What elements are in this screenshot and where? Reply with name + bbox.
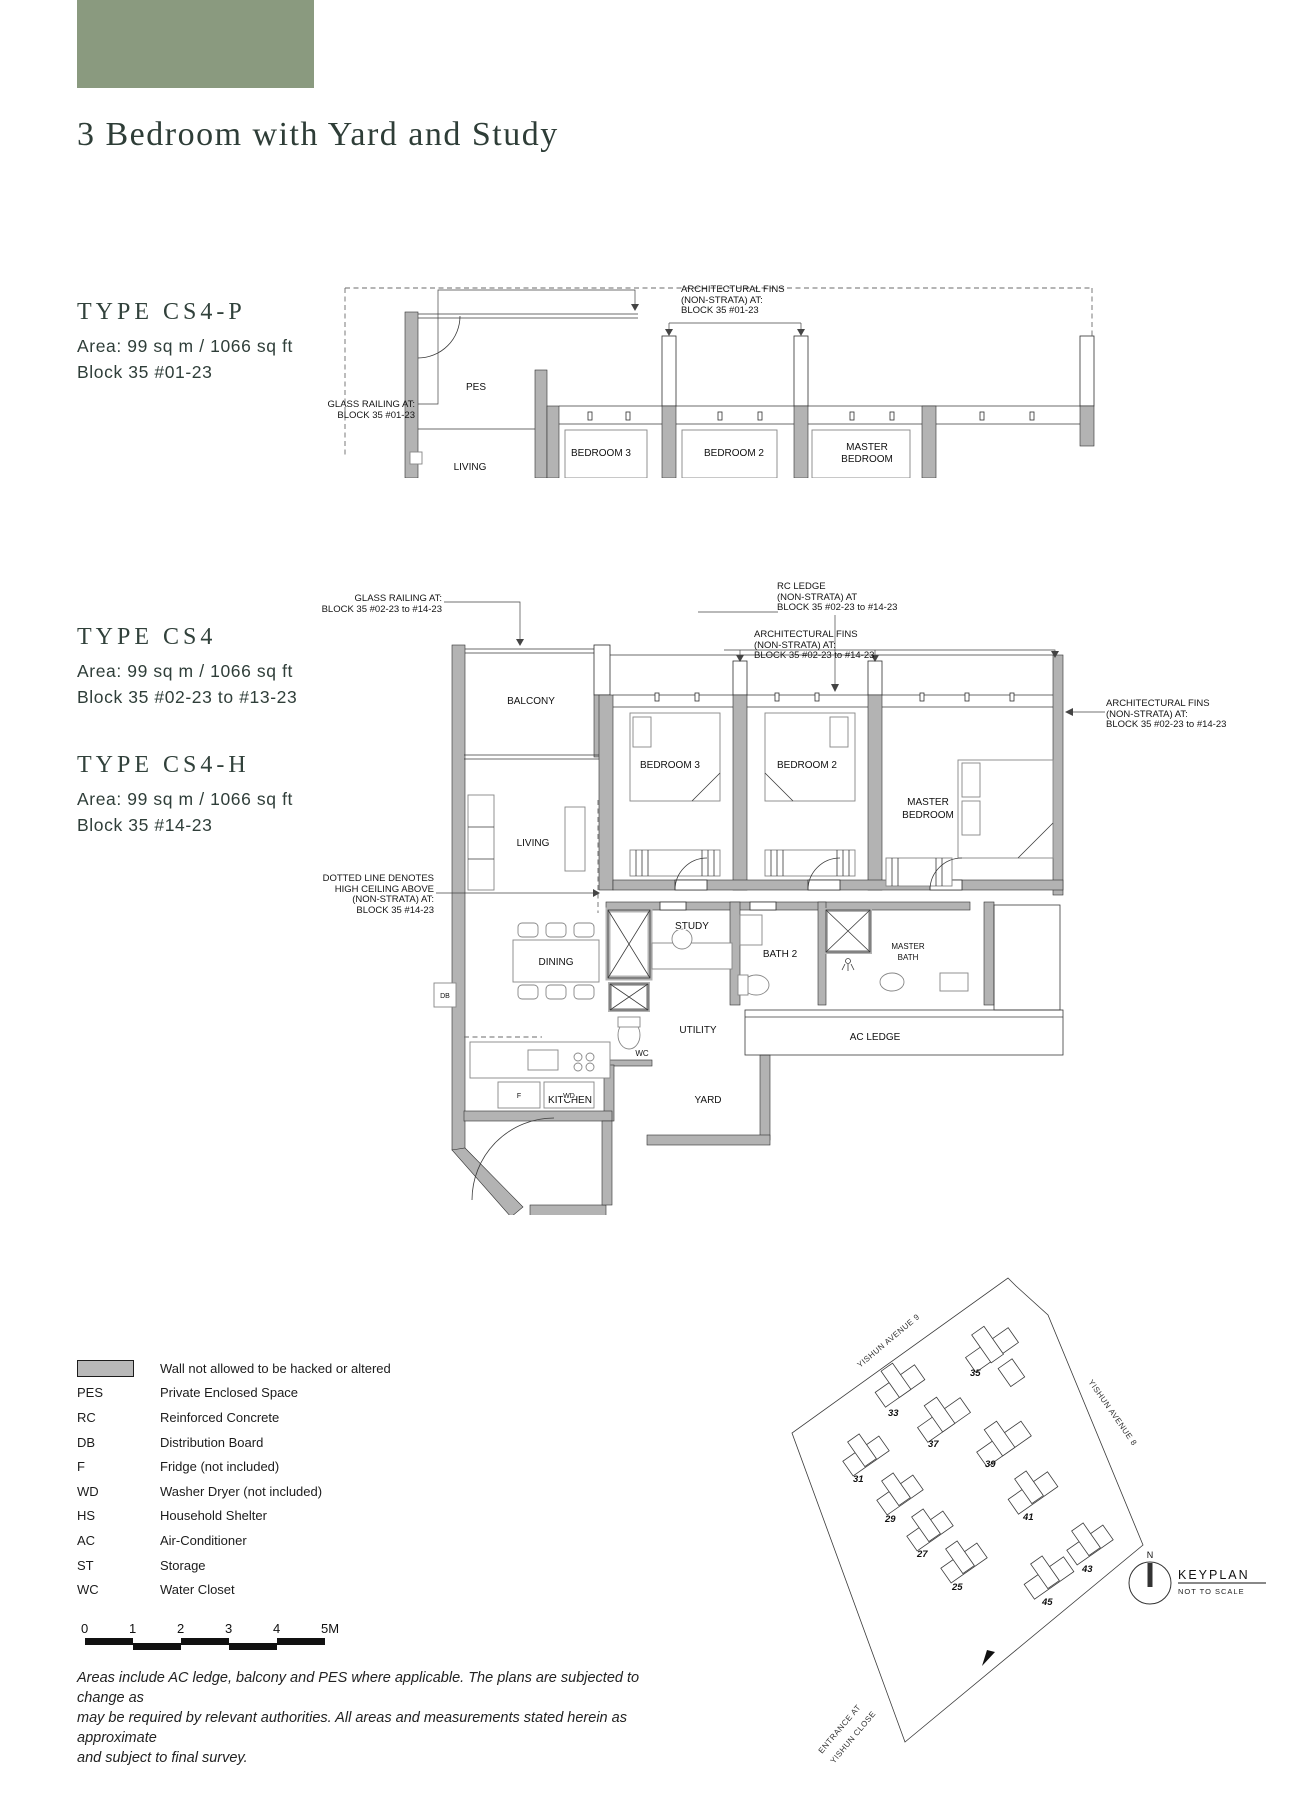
block-29: 29 (884, 1514, 896, 1525)
cs4-ann-glass-railing: GLASS RAILING AT: BLOCK 35 #02-23 to #14… (300, 594, 442, 615)
block-33: 33 (888, 1408, 899, 1419)
entrance-arrow (982, 1650, 995, 1666)
cs4-label-dining: DINING (539, 957, 574, 968)
road-yishun-ave-9: YISHUN AVENUE 9 (856, 1312, 922, 1369)
scale-tick-0: 0 (81, 1622, 88, 1636)
cs4-ann-dotted-line: DOTTED LINE DENOTES HIGH CEILING ABOVE (… (292, 874, 434, 916)
highlight-unit (998, 1359, 1025, 1387)
cs4-hs-shelter (608, 910, 650, 1010)
north-n: N (1147, 1550, 1154, 1560)
keyplan-subtitle: NOT TO SCALE (1178, 1587, 1245, 1596)
cs4p-label-master2: BEDROOM (841, 454, 893, 465)
cs4-label-wc: WC (635, 1049, 649, 1058)
keyplan-north-arrow: N (1129, 1550, 1171, 1604)
cs4p-ann-glass-railing: GLASS RAILING AT: BLOCK 35 #01-23 (280, 400, 415, 421)
floorplan-page: { "header": { "title": "3 Bedroom with Y… (0, 0, 1299, 1802)
legend-row-st: ST Storage (77, 1553, 497, 1578)
keyplan-title: KEYPLAN (1178, 1568, 1250, 1582)
cs4-label-utility: UTILITY (679, 1025, 717, 1036)
legend-row-f: F Fridge (not included) (77, 1454, 497, 1479)
block-37: 37 (928, 1439, 939, 1450)
cs4-ann-rc-ledge: RC LEDGE (NON-STRATA) AT BLOCK 35 #02-23… (777, 582, 897, 614)
legend-row-rc: RC Reinforced Concrete (77, 1405, 497, 1430)
cs4-label-bath2: BATH 2 (763, 949, 798, 960)
cs4-label-wd: WD (563, 1093, 575, 1100)
block-27: 27 (916, 1549, 928, 1560)
keyplan-title-group: KEYPLAN NOT TO SCALE (1178, 1568, 1266, 1596)
scale-bar: 0 1 2 3 4 5M (77, 1622, 377, 1658)
scale-tick-5: 5M (321, 1622, 339, 1636)
cs4-label-acledge: AC LEDGE (850, 1032, 901, 1043)
legend-row-pes: PES Private Enclosed Space (77, 1381, 497, 1406)
legend-row-ac: AC Air-Conditioner (77, 1528, 497, 1553)
block-45: 45 (1041, 1597, 1053, 1608)
cs4-label-bedroom3: BEDROOM 3 (640, 760, 700, 771)
cs4p-label-master1: MASTER (846, 442, 888, 453)
cs4-label-living: LIVING (517, 838, 550, 849)
accent-block (77, 0, 314, 88)
block-39: 39 (985, 1459, 996, 1470)
scale-tick-4: 4 (273, 1622, 280, 1636)
keyplan: YISHUN AVENUE 9 YISHUN AVENUE 8 ENTRANCE… (770, 1262, 1299, 1782)
keyplan-buildings (835, 1315, 1113, 1599)
cs4-label-bedroom2: BEDROOM 2 (777, 760, 837, 771)
road-yishun-ave-8: YISHUN AVENUE 8 (1086, 1378, 1138, 1447)
scale-tick-1: 1 (129, 1622, 136, 1636)
cs4-label-f: F (517, 1093, 521, 1100)
block-25: 25 (951, 1582, 963, 1593)
block-31: 31 (853, 1474, 864, 1485)
cs4-label-balcony: BALCONY (507, 696, 555, 707)
disclaimer: Areas include AC ledge, balcony and PES … (77, 1668, 662, 1768)
wall-note: Wall not allowed to be hacked or altered (160, 1361, 391, 1376)
page-title: 3 Bedroom with Yard and Study (77, 116, 559, 154)
cs4-label-yard: YARD (694, 1095, 721, 1106)
legend-row-wc: WC Water Closet (77, 1577, 497, 1602)
keyplan-boundary (792, 1278, 1143, 1742)
legend-wall-row: Wall not allowed to be hacked or altered (77, 1356, 497, 1381)
cs4-shaft-shower (826, 910, 870, 971)
cs4-label-master2: BEDROOM (902, 810, 954, 821)
cs4p-label-bedroom3: BEDROOM 3 (571, 448, 631, 459)
cs4-label-master1: MASTER (907, 797, 949, 808)
cs4-label-masterbath1: MASTER (891, 942, 925, 951)
wall-swatch (77, 1360, 134, 1377)
block-43: 43 (1081, 1564, 1093, 1575)
cs4-label-masterbath2: BATH (898, 953, 919, 962)
legend-row-db: DB Distribution Board (77, 1430, 497, 1455)
cs4p-label-pes: PES (466, 382, 486, 393)
scale-tick-3: 3 (225, 1622, 232, 1636)
cs4p-label-living: LIVING (454, 462, 487, 473)
cs4p-label-bedroom2: BEDROOM 2 (704, 448, 764, 459)
cs4p-ann-arch-fins: ARCHITECTURAL FINS (NON-STRATA) AT: BLOC… (681, 285, 785, 317)
cs4-label-db: DB (440, 993, 450, 1000)
legend: Wall not allowed to be hacked or altered… (77, 1356, 497, 1602)
block-41: 41 (1022, 1512, 1034, 1523)
legend-row-hs: HS Household Shelter (77, 1504, 497, 1529)
scale-tick-2: 2 (177, 1622, 184, 1636)
cs4-ann-arch-fins-top: ARCHITECTURAL FINS (NON-STRATA) AT: BLOC… (754, 630, 874, 662)
cs4-ann-arch-fins-right: ARCHITECTURAL FINS (NON-STRATA) AT: BLOC… (1106, 699, 1226, 731)
legend-row-wd: WD Washer Dryer (not included) (77, 1479, 497, 1504)
block-35: 35 (970, 1368, 981, 1379)
cs4-label-study: STUDY (675, 921, 709, 932)
